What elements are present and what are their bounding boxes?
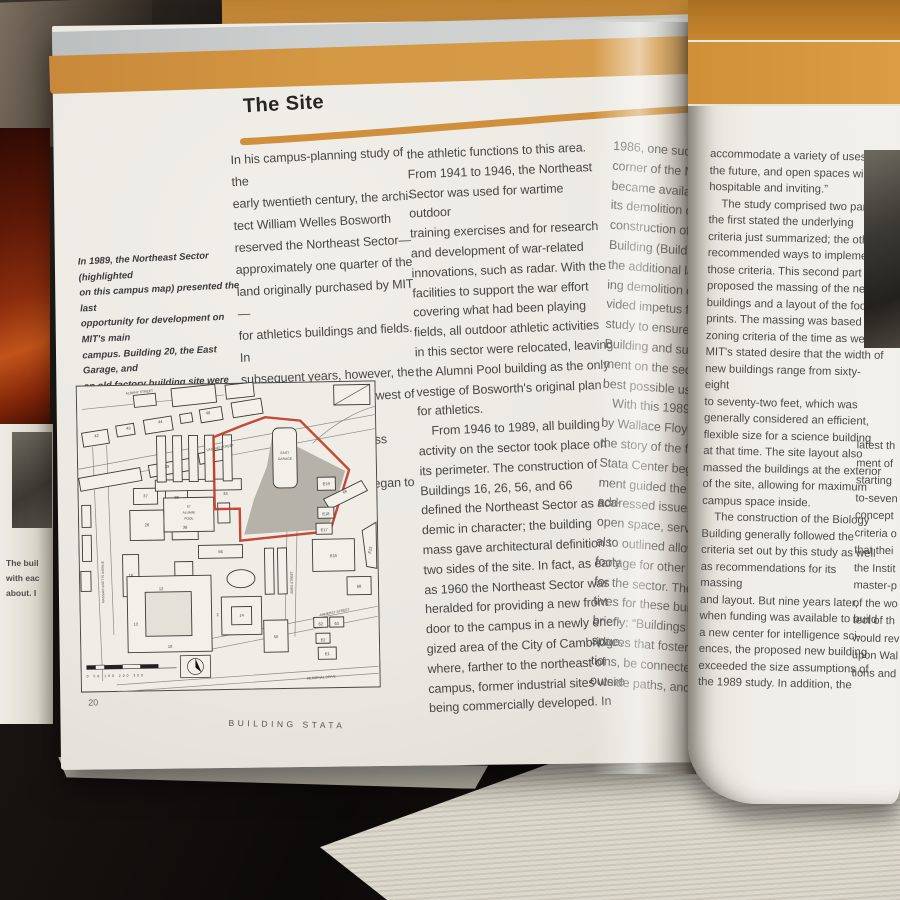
right-orange-band — [688, 40, 900, 106]
page-number: 20 — [88, 697, 98, 707]
campus-map: 0 50 100 200 300 ALBANY STREET VASSAR ST… — [76, 379, 381, 700]
adjacent-page-edge: The buil with eac about. I — [0, 424, 53, 724]
right-page: accommodate a variety of uses for the fu… — [688, 0, 900, 804]
svg-text:EAST: EAST — [280, 451, 289, 455]
adjacent-caption-fragment: The buil with eac about. I — [6, 556, 52, 601]
right-cover-edge — [688, 0, 900, 40]
svg-text:POOL: POOL — [184, 516, 193, 520]
right-edge-column: latest th ment of starting to-seven conc… — [851, 437, 900, 690]
svg-text:E1: E1 — [325, 651, 331, 656]
svg-text:E2: E2 — [321, 637, 327, 642]
map-north-arrow — [180, 655, 210, 678]
running-footer: BUILDING STATA — [228, 718, 345, 731]
svg-text:AMES STREET: AMES STREET — [290, 571, 294, 594]
svg-text:57: 57 — [187, 505, 191, 509]
svg-text:E15: E15 — [330, 553, 338, 558]
svg-text:E19: E19 — [323, 481, 331, 486]
adjacent-page-photo — [0, 128, 50, 430]
svg-text:E17: E17 — [321, 527, 329, 532]
adjacent-small-photo — [12, 432, 52, 528]
photo-scene: The buil with eac about. I The Site In 1… — [0, 0, 900, 900]
svg-text:GARAGE: GARAGE — [278, 457, 293, 461]
svg-text:MASSACHUSETTS AVENUE: MASSACHUSETTS AVENUE — [101, 561, 106, 603]
svg-text:ALUMNI: ALUMNI — [183, 510, 196, 514]
svg-text:E18: E18 — [322, 511, 330, 516]
aerial-photo — [864, 150, 900, 348]
left-page: The Site In 1989, the Northeast Sector (… — [52, 18, 703, 770]
